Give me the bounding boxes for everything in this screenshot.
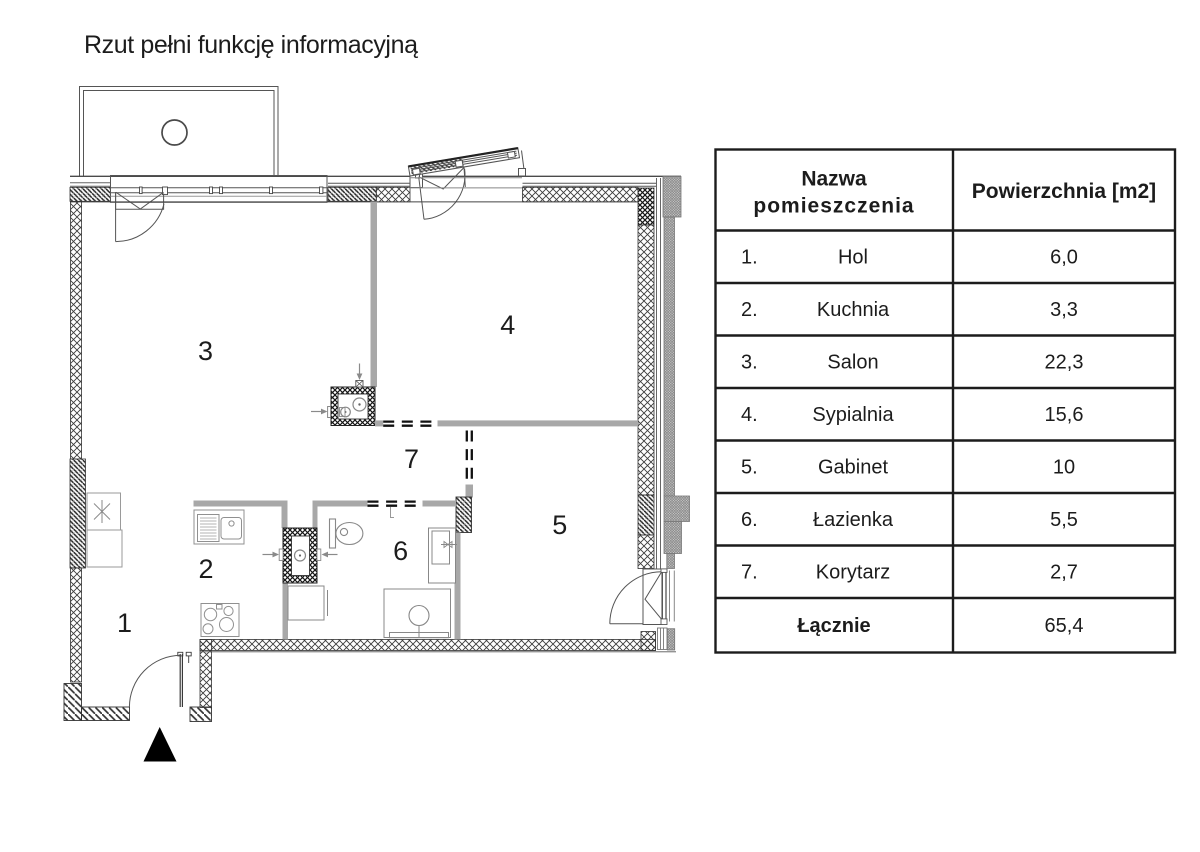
- svg-text:Salon: Salon: [827, 352, 878, 374]
- svg-text:22,3: 22,3: [1045, 352, 1084, 374]
- svg-text:1.: 1.: [741, 247, 758, 269]
- svg-text:10: 10: [1053, 457, 1075, 479]
- svg-text:4: 4: [500, 310, 515, 340]
- svg-text:3,3: 3,3: [1050, 299, 1078, 321]
- svg-text:Sypialnia: Sypialnia: [812, 404, 894, 426]
- svg-text:Łącznie: Łącznie: [797, 615, 870, 637]
- svg-text:1: 1: [117, 608, 132, 638]
- svg-text:Kuchnia: Kuchnia: [817, 299, 890, 321]
- svg-text:3.: 3.: [741, 352, 758, 374]
- svg-text:6.: 6.: [741, 509, 758, 531]
- svg-text:15,6: 15,6: [1045, 404, 1084, 426]
- svg-text:2.: 2.: [741, 299, 758, 321]
- svg-text:Nazwa: Nazwa: [801, 168, 867, 191]
- svg-text:Korytarz: Korytarz: [816, 562, 890, 584]
- svg-text:7: 7: [404, 444, 419, 474]
- svg-text:Powierzchnia [m2]: Powierzchnia [m2]: [972, 180, 1156, 203]
- svg-text:2: 2: [198, 554, 213, 584]
- svg-text:Hol: Hol: [838, 247, 868, 269]
- svg-text:5.: 5.: [741, 457, 758, 479]
- svg-text:7.: 7.: [741, 562, 758, 584]
- svg-text:5: 5: [552, 510, 567, 540]
- svg-text:5,5: 5,5: [1050, 509, 1078, 531]
- svg-text:6,0: 6,0: [1050, 247, 1078, 269]
- svg-text:4.: 4.: [741, 404, 758, 426]
- svg-text:Rzut pełni funkcję informacyjn: Rzut pełni funkcję informacyjną: [84, 31, 418, 59]
- svg-text:Gabinet: Gabinet: [818, 457, 888, 479]
- svg-text:2,7: 2,7: [1050, 562, 1078, 584]
- svg-text:Łazienka: Łazienka: [813, 509, 894, 531]
- svg-text:pomieszczenia: pomieszczenia: [753, 195, 914, 218]
- svg-text:3: 3: [198, 336, 213, 366]
- svg-text:6: 6: [393, 536, 408, 566]
- svg-text:65,4: 65,4: [1045, 615, 1084, 637]
